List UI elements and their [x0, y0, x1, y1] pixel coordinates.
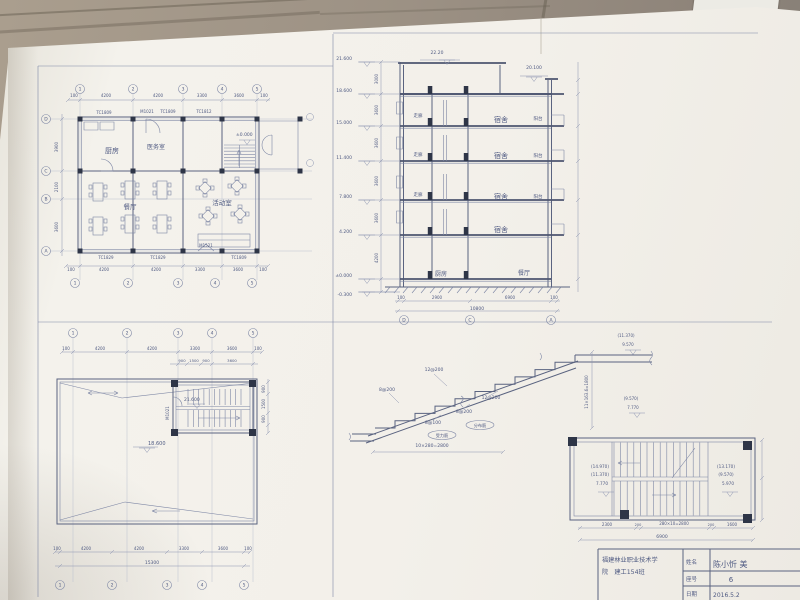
- drawing-linework: 厨房医务室餐厅活动室±0.000TC1809M1021TC1809TC1812T…: [0, 0, 800, 600]
- label-floor_plan-dims_left-0: 3900: [54, 141, 59, 152]
- label-floor_plan-dims_bottom-0: 100: [67, 267, 75, 272]
- label-roof_plan-dims_bottom-1: 4200: [81, 546, 92, 551]
- label-floor_plan-rooms-activity: 活动室: [212, 198, 232, 207]
- grid-bubble-label: 2: [111, 583, 114, 589]
- columns: [78, 86, 753, 523]
- label-section-dining: 餐厅: [518, 269, 530, 277]
- label-roof_plan-dims_bottom-5: 100: [244, 546, 252, 551]
- activity-table: [231, 205, 249, 223]
- grid-bubble-label: 2: [127, 281, 130, 287]
- label-roof_plan-dims_bottom-0: 100: [53, 546, 61, 551]
- dining-table: [89, 217, 107, 235]
- label-stair_section-rebar_mid: 12@200: [482, 395, 501, 401]
- label-roof_plan-dims_top-4: 3600: [227, 346, 238, 351]
- dim-tick: [53, 60, 764, 568]
- label-section-levels-3: 11.400: [336, 155, 352, 161]
- label-section-total: 10800: [470, 306, 484, 312]
- photo-scene: 厨房医务室餐厅活动室±0.000TC1809M1021TC1809TC1812T…: [0, 0, 800, 600]
- label-section-dorms-1: 宿舍: [494, 151, 508, 160]
- label-floor_plan-dims_top-4: 3600: [234, 93, 245, 98]
- label-floor_plan-rooms-kitchen: 厨房: [105, 146, 119, 155]
- activity-table: [196, 179, 214, 197]
- label-floor_plan-dims_bottom-1: 4200: [99, 267, 110, 272]
- label-floor_plan-dims_bottom-4: 3600: [233, 267, 244, 272]
- label-section-levels-4: 7.800: [339, 194, 352, 200]
- grid-bubble-label: 2: [132, 87, 135, 93]
- stair-treads: [188, 389, 241, 427]
- label-stair_section-rebar_top: 12@200: [425, 367, 444, 373]
- label-roof_plan-total: 15300: [145, 560, 159, 566]
- label-roof_plan-dims_sub-1: 1500: [189, 358, 199, 363]
- ground-hatch: [385, 287, 561, 293]
- grid-bubble-label: 4: [221, 87, 224, 93]
- label-floor_plan-dims_bottom-2: 4200: [151, 267, 162, 272]
- label-roof_plan-dims_top-2: 4200: [147, 346, 158, 351]
- label-section-dims_bottom-1: 2900: [432, 295, 443, 300]
- label-floor_plan-dims_bottom-3: 3300: [195, 267, 206, 272]
- label-floor_plan-dims_top-0: 100: [70, 93, 78, 98]
- label-roof_plan-dims_top-1: 4200: [95, 346, 106, 351]
- label-section-levels-6: ±0.000: [335, 273, 352, 279]
- label-stair_plan-levels_left-1: (11.370): [591, 472, 609, 477]
- label-section-heights-1: 3600: [374, 104, 379, 115]
- label-title_block-name_value: 陈小忻 美: [713, 559, 748, 569]
- label-floor_plan-tags_top-3: TC1812: [195, 109, 212, 114]
- grid-bubble-label: 5: [251, 281, 254, 287]
- label-section-levels-0: 21.600: [336, 56, 352, 62]
- label-roof_plan-dims_sub-0: 900: [178, 358, 186, 363]
- label-title_block-school_line1: 福建林业职业技术学: [602, 556, 658, 564]
- label-section-levels-2: 15.000: [336, 120, 352, 126]
- label-roof_plan-dims_bottom-3: 3300: [179, 546, 190, 551]
- label-section-corridor-2: 走廊: [414, 191, 423, 198]
- tread-line: [614, 443, 700, 516]
- grid-bubble-label: 1: [72, 331, 75, 337]
- label-floor_plan-level: ±0.000: [236, 132, 253, 138]
- label-section-heights-5: 4200: [374, 252, 379, 263]
- label-section-dorms-2: 宿舍: [494, 192, 508, 201]
- label-floor_plan-dims_top-5: 100: [260, 93, 268, 98]
- label-floor_plan-tags_top-0: TC1809: [95, 110, 112, 115]
- label-section-balconies-1: 阳台: [534, 152, 543, 159]
- slab-detail: [397, 96, 565, 281]
- label-stair_section-note_main: 受力筋: [436, 432, 449, 439]
- label-section-levels-7: -0.300: [337, 292, 352, 298]
- label-section-dims_bottom-0: 100: [397, 295, 405, 300]
- label-title_block-school_line2: 院 建工154班: [602, 568, 645, 576]
- grid-bubble-label: 5: [252, 331, 255, 337]
- label-floor_plan-tags_top-1: M1021: [140, 109, 154, 114]
- grid-bubble-label: 3: [182, 87, 185, 93]
- label-floor_plan-tags_bottom-2: M1521: [199, 243, 213, 248]
- floor-slabs: [397, 94, 565, 281]
- label-stair_plan-levels_left-0: (14.970): [591, 464, 609, 469]
- grid-bubble-label: 1: [74, 281, 77, 287]
- grid-bubble-label: 5: [243, 583, 246, 589]
- label-section-heights-4: 3600: [374, 212, 379, 223]
- label-roof_plan-dims_right-1: 1500: [261, 398, 266, 409]
- label-roof_plan-dims_bottom-2: 4200: [134, 546, 145, 551]
- label-section-heights-0: 3000: [374, 73, 379, 84]
- label-stair_plan-dims_bottom-0: 2300: [602, 522, 613, 527]
- grid-bubble-label: A: [549, 318, 553, 324]
- label-floor_plan-dims_bottom-5: 100: [259, 267, 267, 272]
- sheet-frame: [38, 33, 772, 597]
- label-stair_plan-levels_right-1: (9.570): [718, 472, 734, 477]
- label-roof_plan-dims_top-5: 100: [254, 346, 262, 351]
- label-stair_section-note_dist: 分布筋: [474, 422, 487, 429]
- grid-bubble-label: A: [44, 249, 48, 255]
- label-stair_plan-dims_bottom-1: 200: [635, 523, 642, 527]
- label-floor_plan-tags_bottom-3: TC1809: [230, 255, 247, 260]
- label-roof_plan-dims_right-2: 900: [261, 415, 266, 423]
- grade-hatch: [385, 287, 561, 293]
- label-section-heights-3: 3600: [374, 175, 379, 186]
- structural-column: [78, 86, 753, 523]
- label-stair_section-lower_levels-1: 7.770: [627, 405, 639, 410]
- label-floor_plan-rooms-dining: 餐厅: [124, 202, 138, 211]
- label-stair_section-lower_levels-0: (9.570): [624, 396, 639, 401]
- label-roof_plan-dims_sub-3: 3600: [227, 358, 237, 363]
- label-stair_section-dim_flight: 10×280=2800: [415, 443, 448, 449]
- label-floor_plan-tags_top-2: TC1809: [159, 109, 176, 114]
- label-title_block-date_label: 日期: [686, 591, 698, 598]
- grid-bubble-label: 3: [177, 281, 180, 287]
- label-stair_plan-total: 6900: [656, 534, 668, 540]
- label-roof_plan-dims_sub-2: 900: [202, 358, 210, 363]
- label-section-heights-2: 3600: [374, 137, 379, 148]
- label-title_block-name_label: 姓名: [686, 558, 697, 566]
- grid-bubble-label: C: [44, 169, 47, 175]
- grid-bubble-label: 1: [79, 87, 82, 93]
- label-stair_section-rebar_left: 8@200: [379, 387, 395, 393]
- grid-bubble-label: 3: [177, 331, 180, 337]
- label-section-corridor-0: 走廊: [414, 112, 423, 119]
- label-roof_plan-dims_bottom-4: 3600: [218, 546, 229, 551]
- label-stair_section-rebar_dist: 8@200: [456, 409, 472, 415]
- label-floor_plan-dims_top-1: 4200: [101, 93, 112, 98]
- label-section-top_level: 22.20: [431, 50, 444, 56]
- label-title_block-seat_label: 座号: [686, 575, 698, 583]
- label-floor_plan-tags_bottom-1: TC1829: [149, 255, 166, 260]
- label-stair_plan-dims_bottom-3: 200: [708, 523, 715, 527]
- label-section-dims_bottom-3: 100: [550, 295, 558, 300]
- grid-bubble-label: 4: [211, 331, 214, 337]
- grid-bubble-label: B: [44, 197, 47, 203]
- dining-table: [121, 215, 139, 233]
- label-section-right_level: 20.100: [526, 65, 542, 71]
- grid-bubble-label: 4: [201, 583, 204, 589]
- label-floor_plan-tags_bottom-0: TC1829: [97, 255, 114, 260]
- activity-table: [228, 177, 246, 195]
- dining-table: [153, 181, 171, 199]
- grid-bubble-label: 2: [126, 331, 129, 337]
- label-stair_section-upper_levels-1: 9.570: [622, 342, 634, 347]
- label-stair_plan-dims_bottom-4: 1600: [727, 522, 738, 527]
- grid-bubble-label: 5: [256, 87, 259, 93]
- label-floor_plan-dims_left-1: 2100: [54, 181, 59, 192]
- label-stair_plan-levels_right-2: 5.970: [722, 481, 734, 486]
- label-floor_plan-dims_top-3: 3300: [197, 93, 208, 98]
- label-section-levels-1: 18.600: [336, 88, 352, 94]
- dining-table: [89, 183, 107, 201]
- label-section-dorms-3: 宿舍: [494, 225, 508, 234]
- label-roof_plan-roof_level: 18.600: [148, 441, 166, 447]
- label-floor_plan-dims_left-2: 3600: [54, 221, 59, 232]
- tread-line: [188, 389, 241, 427]
- label-section-dorms-0: 宿舍: [494, 115, 508, 124]
- label-roof_plan-dims_top-3: 3300: [190, 346, 201, 351]
- label-title_block-seat_value: 6: [729, 576, 734, 584]
- label-roof_plan-stair_level: 21.600: [184, 397, 200, 403]
- stair-treads: [614, 443, 700, 516]
- label-stair_section-upper_levels-0: (11.370): [617, 333, 635, 338]
- grid-bubble-label: C: [468, 318, 471, 324]
- label-floor_plan-dims_top-2: 4200: [153, 93, 164, 98]
- activity-table: [199, 207, 217, 225]
- stair-section-detail: [349, 351, 653, 452]
- label-roof_plan-door_tag: M1021: [165, 406, 170, 420]
- label-section-kitchen: 厨房: [435, 270, 447, 278]
- label-stair_plan-dims_bottom-2: 280×10=2800: [659, 521, 689, 526]
- label-stair_section-rebar_main: 8@100: [425, 420, 441, 426]
- label-section-balconies-2: 阳台: [534, 193, 543, 200]
- grid-bubble-label: 4: [214, 281, 217, 287]
- label-title_block-date_value: 2016.5.2: [713, 592, 740, 599]
- label-stair_plan-levels_right-0: (13.170): [717, 464, 735, 469]
- dining-table: [153, 215, 171, 233]
- label-section-dims_bottom-2: 6900: [505, 295, 516, 300]
- label-roof_plan-dims_right-0: 900: [261, 385, 266, 393]
- grid-bubble-label: D: [402, 318, 406, 324]
- dining-table: [121, 181, 139, 199]
- label-stair_plan-levels_left-2: 7.770: [596, 481, 608, 486]
- label-roof_plan-dims_top-0: 100: [62, 346, 70, 351]
- label-section-levels-5: 4.200: [339, 229, 352, 235]
- label-section-balconies-0: 阳台: [534, 115, 543, 122]
- label-floor_plan-rooms-infirmary: 医务室: [147, 143, 165, 151]
- annotation-text: 厨房医务室餐厅活动室±0.000TC1809M1021TC1809TC1812T…: [44, 50, 747, 599]
- label-section-corridor-1: 走廊: [414, 151, 423, 158]
- grid-bubble-label: 3: [166, 583, 169, 589]
- label-stair_section-dim_riser: 11×163.6=1800: [584, 375, 589, 409]
- grid-bubble-label: 1: [59, 583, 62, 589]
- grid-bubble-label: D: [44, 117, 48, 123]
